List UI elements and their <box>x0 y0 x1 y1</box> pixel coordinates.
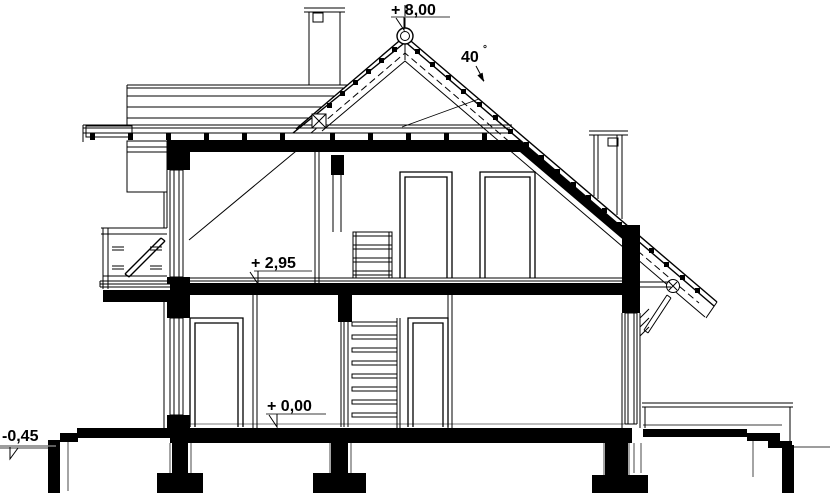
footing-middle <box>313 473 366 493</box>
battens-right <box>415 49 700 293</box>
foundations <box>48 428 794 493</box>
terrace-door-section <box>625 313 637 424</box>
rafter-underside-line <box>322 61 705 317</box>
wing-wall-detail <box>83 125 167 228</box>
ground-floor-slab <box>170 428 632 443</box>
foundation-wall-left <box>172 443 188 473</box>
battens-left <box>313 47 397 119</box>
floor-slabs <box>167 140 640 295</box>
strut-brackets <box>112 247 162 269</box>
stairs-upper-flight <box>353 232 392 278</box>
stairwell-post <box>333 175 341 232</box>
house-cross-section-page: + 8,00 40 ° + 2,95 + 0,00 -0,45 <box>0 0 830 493</box>
balcony-door-section <box>170 170 183 277</box>
ridge-joint <box>397 28 413 44</box>
staircase <box>341 232 400 428</box>
canopy-top-rail <box>101 228 167 234</box>
retaining-wall-left <box>48 440 60 493</box>
foundation-wall-middle <box>331 443 348 473</box>
level-marker-ground-floor: + 0,00 <box>266 398 326 427</box>
roof-angle-value: 40 <box>461 49 479 66</box>
level-marker-upper-floor: + 2,95 <box>250 255 312 284</box>
roof-angle-label: 40 ° <box>461 44 487 82</box>
angle-arrowhead <box>477 73 484 82</box>
entrance-canopy <box>100 228 170 289</box>
background-gable-line <box>402 99 479 127</box>
upper-floor-slab <box>170 283 640 295</box>
left-chimney <box>304 8 345 85</box>
ground-door-left <box>190 318 243 427</box>
canopy-strut <box>125 238 165 277</box>
eave-support-right <box>640 282 671 333</box>
footing-right <box>592 475 648 493</box>
membrane-dashed-line <box>311 53 699 303</box>
footing-left <box>157 473 203 493</box>
terrace-slab-left <box>77 428 172 438</box>
right-exterior-wall <box>622 225 649 428</box>
doors <box>190 172 535 427</box>
upper-door-right <box>480 172 535 278</box>
rafter-blocks <box>90 133 487 140</box>
terrain-level-label: -0,45 <box>2 428 39 445</box>
left-window-section <box>170 318 183 415</box>
stairwell-beam-upper <box>331 155 344 175</box>
attic-slope-line <box>189 142 307 240</box>
left-slope-batten-line <box>293 40 408 133</box>
stairs-ground-flight <box>341 318 400 428</box>
retaining-wall-right <box>782 445 794 493</box>
sill-hatch <box>640 309 649 336</box>
canopy-post <box>103 228 108 289</box>
cross-section-drawing: + 8,00 40 ° + 2,95 + 0,00 -0,45 <box>0 0 830 493</box>
foundation-wall-right <box>605 443 628 475</box>
upper-interior-wall <box>315 152 319 283</box>
attic-ceiling-slab <box>167 140 520 152</box>
stairwell-pier <box>338 290 352 322</box>
level-marker-ridge: + 8,00 <box>391 2 450 30</box>
roof-angle-unit: ° <box>483 44 487 55</box>
canopy-slab <box>103 290 190 302</box>
ground-interior-wall-left <box>253 295 257 428</box>
level-marker-terrain: -0,45 <box>0 428 56 459</box>
upper-door-left <box>400 172 452 278</box>
ridge-level-label: + 8,00 <box>391 2 436 19</box>
ground-door-middle <box>408 318 448 427</box>
terrace-slab-right <box>643 429 747 437</box>
upper-floor-level-label: + 2,95 <box>251 255 296 272</box>
ground-floor-level-label: + 0,00 <box>267 398 312 415</box>
